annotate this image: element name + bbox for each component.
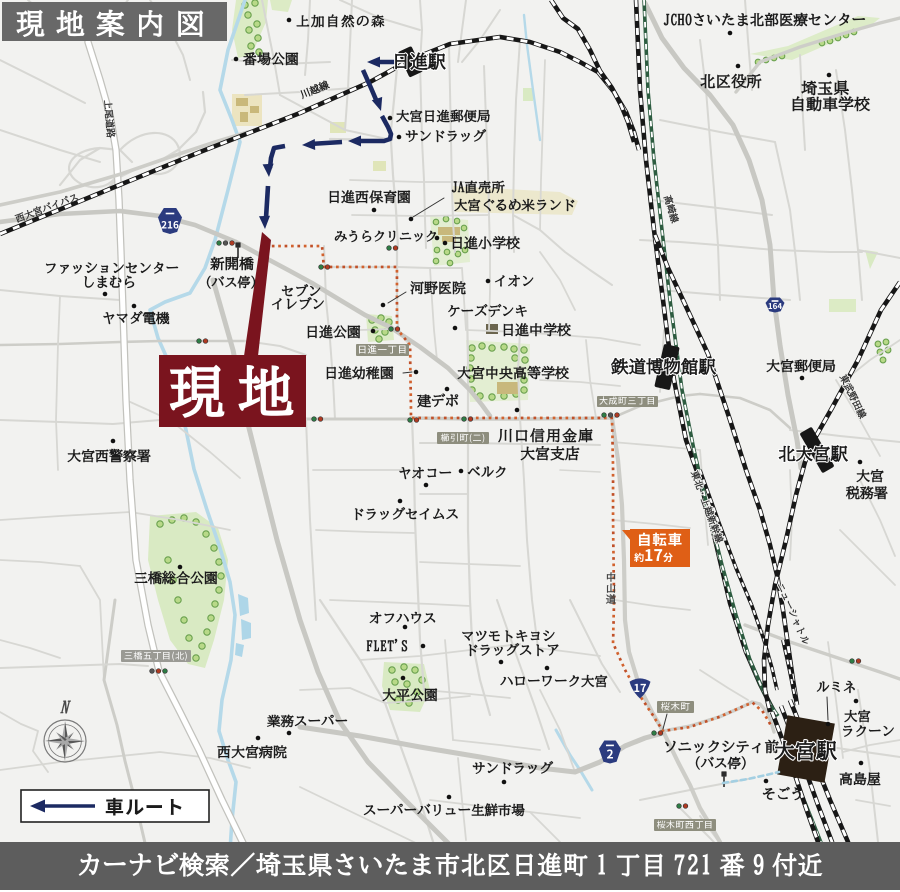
svg-text:道: 道 [606,593,617,605]
svg-text:現地案内図: 現地案内図 [16,9,216,38]
svg-text:大宮中央高等学校: 大宮中央高等学校 [456,365,569,380]
svg-text:ヤマダ電機: ヤマダ電機 [102,310,170,325]
svg-text:164: 164 [768,301,782,312]
svg-text:サンドラッグ: サンドラッグ [405,128,487,143]
svg-text:ルミネ: ルミネ [816,680,857,694]
svg-text:現地: 現地 [169,363,307,419]
svg-text:オフハウス: オフハウス [369,611,437,625]
svg-text:自動車学校: 自動車学校 [790,95,871,112]
svg-text:イレブン: イレブン [271,297,325,311]
svg-text:日進西保育園: 日進西保育園 [327,189,411,204]
svg-text:（バス停）: （バス停） [199,275,264,289]
svg-text:三橋五丁目(北): 三橋五丁目(北) [124,649,188,662]
svg-text:西大宮病院: 西大宮病院 [217,744,287,759]
svg-text:北区役所: 北区役所 [700,73,764,89]
svg-text:中: 中 [606,571,617,583]
svg-text:上加自然の森: 上加自然の森 [296,14,386,28]
svg-text:日進中学校: 日進中学校 [501,322,571,337]
svg-text:2: 2 [606,745,613,762]
svg-text:スーパーバリュー生鮮市場: スーパーバリュー生鮮市場 [363,802,526,817]
svg-text:ラクーン: ラクーン [841,724,895,738]
svg-text:大成町三丁目: 大成町三丁目 [599,394,656,407]
svg-text:櫛引町(二): 櫛引町(二) [440,431,485,444]
svg-text:日進駅: 日進駅 [392,52,447,71]
svg-text:216: 216 [161,216,179,231]
svg-text:ファッションセンター: ファッションセンター [44,261,179,275]
svg-text:大宮ぐるめ米ランド: 大宮ぐるめ米ランド [454,198,576,212]
svg-text:業務スーパー: 業務スーパー [266,714,348,728]
svg-text:17: 17 [634,680,647,696]
svg-text:サンドラッグ: サンドラッグ [472,760,554,775]
svg-text:JCHOさいたま北部医療センター: JCHOさいたま北部医療センター [663,12,866,27]
svg-text:大宮支店: 大宮支店 [520,446,580,461]
svg-text:山: 山 [606,582,617,594]
svg-text:JA直売所: JA直売所 [451,180,506,194]
svg-text:大宮: 大宮 [855,468,884,483]
svg-text:鉄道博物館駅: 鉄道博物館駅 [610,357,718,376]
svg-text:埼玉県: 埼玉県 [801,80,850,96]
svg-text:大宮駅: 大宮駅 [774,739,837,761]
svg-text:新開橋: 新開橋 [210,256,254,271]
svg-text:しまむら: しまむら [82,275,136,289]
svg-text:ハローワーク大宮: ハローワーク大宮 [500,674,608,688]
svg-text:ヤオコー: ヤオコー [398,466,452,480]
svg-text:セブン: セブン [281,284,322,298]
svg-text:ベルク: ベルク [467,465,508,479]
svg-text:大平公園: 大平公園 [381,687,438,702]
svg-text:マツモトキヨシ: マツモトキヨシ [461,629,556,643]
svg-text:日進公園: 日進公園 [305,325,361,339]
svg-text:番場公園: 番場公園 [243,51,299,66]
svg-text:そごう: そごう [762,786,804,801]
svg-text:（バス停）: （バス停） [687,755,755,770]
svg-text:日進一丁目: 日進一丁目 [357,342,407,356]
svg-text:高島屋: 高島屋 [839,771,881,786]
svg-text:大宮西警察署: 大宮西警察署 [66,448,152,463]
svg-text:河野医院: 河野医院 [410,280,466,295]
svg-text:税務署: 税務署 [846,485,889,500]
svg-text:ドラッグストア: ドラッグストア [465,642,560,657]
svg-text:カーナビ検索／埼玉県さいたま市北区日進町 1 丁目 721: カーナビ検索／埼玉県さいたま市北区日進町 1 丁目 721 番 9 付近 [77,852,824,878]
svg-text:ドラッグセイムス: ドラッグセイムス [351,506,459,521]
svg-text:イオン: イオン [494,274,535,288]
svg-text:日進小学校: 日進小学校 [450,235,520,250]
svg-text:川口信用金庫: 川口信用金庫 [497,427,594,443]
svg-text:大宮: 大宮 [844,709,871,723]
svg-text:みうらクリニック: みうらクリニック [334,229,438,243]
svg-text:桜木町西丁目: 桜木町西丁目 [656,818,713,831]
svg-text:ケーズデンキ: ケーズデンキ [447,303,528,318]
svg-text:車ルート: 車ルート [105,793,185,820]
svg-text:大宮郵便局: 大宮郵便局 [765,358,836,373]
svg-text:日進幼稚園: 日進幼稚園 [324,365,394,380]
svg-text:大宮日進郵便局: 大宮日進郵便局 [396,108,491,123]
svg-text:桜木町: 桜木町 [660,699,690,713]
svg-text:北大宮駅: 北大宮駅 [778,445,850,463]
svg-text:FLET'S: FLET'S [366,638,408,653]
svg-text:ソニックシティ前: ソニックシティ前 [663,739,780,754]
svg-text:建デポ: 建デポ [416,393,460,408]
svg-text:三橋総合公園: 三橋総合公園 [134,570,218,585]
